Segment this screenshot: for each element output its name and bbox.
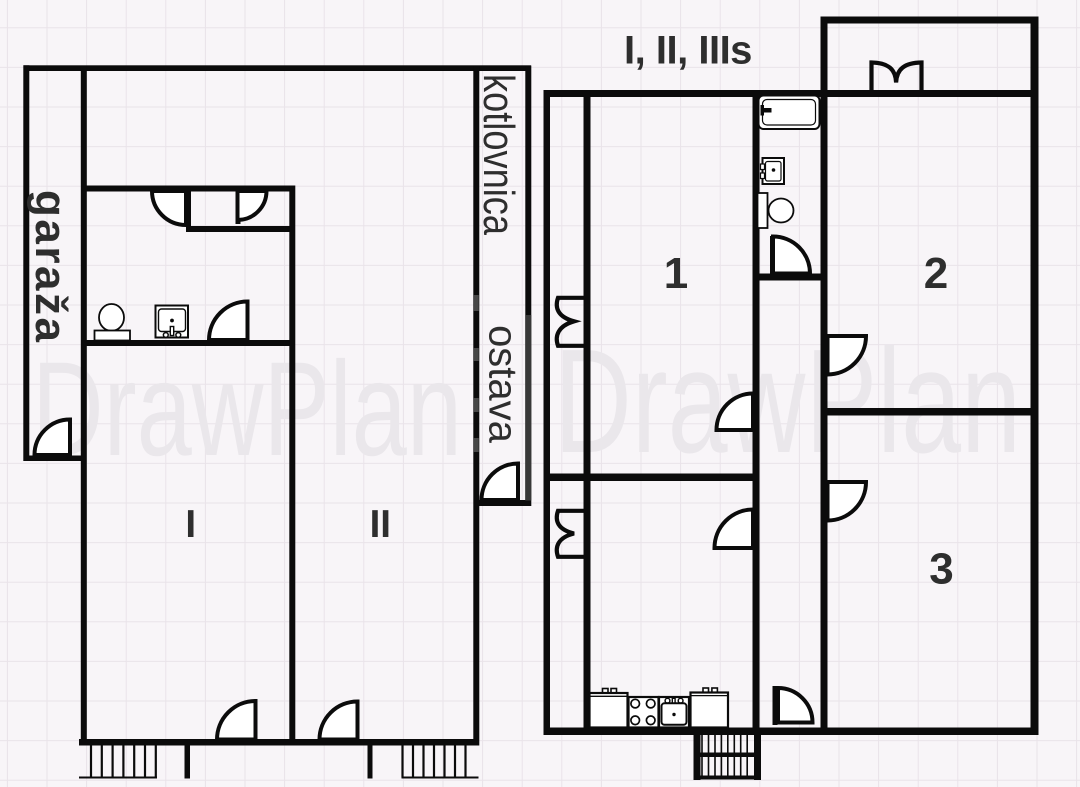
svg-text:I, II, IIIs: I, II, IIIs <box>624 29 752 73</box>
svg-text:3: 3 <box>929 545 953 594</box>
svg-text:II: II <box>370 503 391 546</box>
svg-text:DrawPlan: DrawPlan <box>554 319 1021 484</box>
svg-text:ostava: ostava <box>481 325 525 444</box>
svg-text:garaža: garaža <box>26 190 75 343</box>
svg-text:2: 2 <box>924 249 948 298</box>
svg-text:kotlovnica: kotlovnica <box>474 74 523 235</box>
svg-text:DrawPlan: DrawPlan <box>32 335 462 484</box>
svg-text:I: I <box>185 503 196 546</box>
svg-text:1: 1 <box>664 249 688 298</box>
